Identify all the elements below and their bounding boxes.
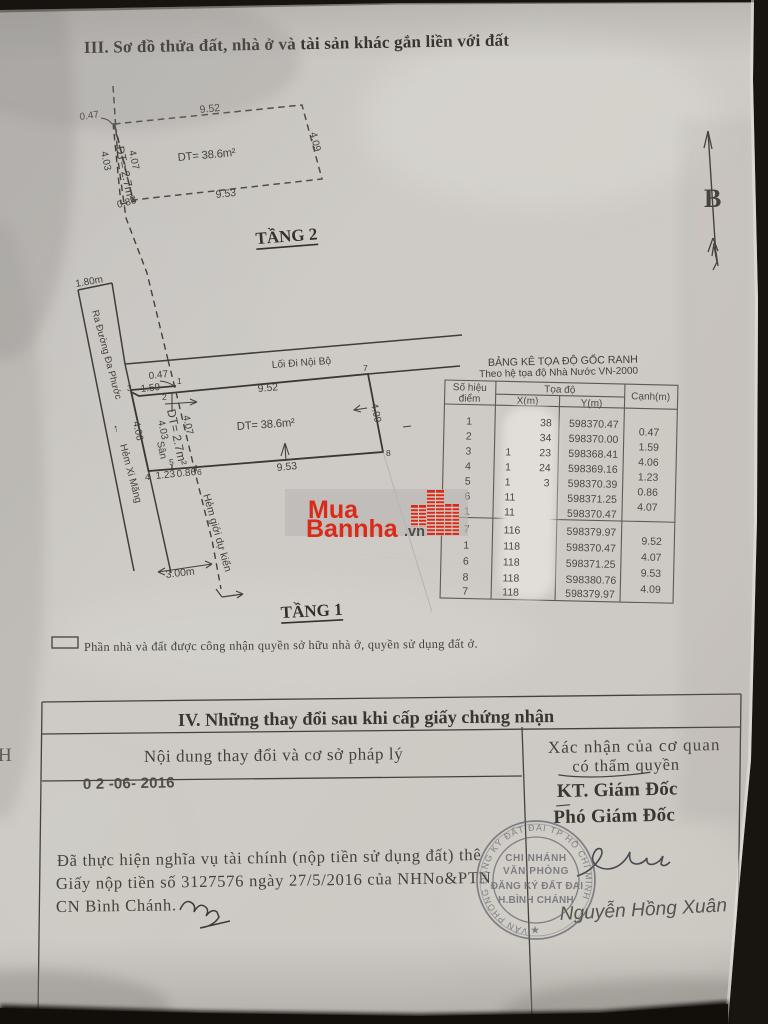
- svg-text:0.47: 0.47: [148, 369, 169, 382]
- svg-text:6: 6: [197, 467, 202, 477]
- svg-text:11: 11: [504, 506, 515, 518]
- svg-text:598368.41: 598368.41: [568, 448, 618, 461]
- svg-text:CN Bình Chánh.: CN Bình Chánh.: [56, 895, 177, 916]
- svg-text:3: 3: [544, 477, 550, 489]
- svg-text:Số hiệu: Số hiệu: [453, 381, 487, 394]
- svg-text:7: 7: [363, 363, 368, 373]
- svg-text:7: 7: [462, 585, 468, 597]
- svg-text:6: 6: [463, 555, 469, 567]
- svg-text:1: 1: [463, 539, 469, 551]
- svg-text:598370.47: 598370.47: [566, 542, 616, 555]
- svg-text:1: 1: [505, 461, 511, 473]
- svg-text:598370.39: 598370.39: [568, 478, 618, 491]
- svg-text:598370.00: 598370.00: [569, 433, 619, 446]
- svg-text:4: 4: [145, 472, 150, 482]
- svg-text:598379.97: 598379.97: [565, 588, 615, 601]
- svg-text:Phó Giám Đốc: Phó Giám Đốc: [553, 805, 675, 829]
- svg-text:Tọa độ: Tọa độ: [544, 384, 576, 396]
- svg-text:24: 24: [539, 462, 551, 474]
- svg-text:ĐĂNG KÝ ĐẤT ĐAI: ĐĂNG KÝ ĐẤT ĐAI: [491, 879, 583, 892]
- svg-text:598371.25: 598371.25: [566, 558, 616, 571]
- svg-text:4.07: 4.07: [637, 501, 658, 513]
- svg-text:116: 116: [503, 524, 520, 536]
- svg-text:1: 1: [505, 476, 511, 488]
- svg-text:9.53: 9.53: [276, 460, 298, 474]
- svg-text:2: 2: [466, 430, 472, 442]
- svg-text:11: 11: [504, 491, 515, 503]
- svg-text:Bannha: Bannha: [306, 515, 399, 543]
- svg-text:★: ★: [531, 925, 540, 935]
- svg-text:IV. Những thay đổi sau khi cấp: IV. Những thay đổi sau khi cấp giấy chứn…: [178, 706, 554, 730]
- svg-text:VĂN PHÒNG: VĂN PHÒNG: [503, 864, 569, 877]
- svg-text:Y(m): Y(m): [581, 398, 603, 409]
- svg-text:điểm: điểm: [459, 392, 481, 404]
- svg-text:TẦNG 1: TẦNG 1: [280, 600, 343, 622]
- svg-text:0.47: 0.47: [639, 426, 660, 438]
- svg-text:CHI NHÁNH: CHI NHÁNH: [505, 851, 567, 864]
- svg-text:Cạnh(m): Cạnh(m): [631, 391, 670, 403]
- svg-text:0.86: 0.86: [176, 467, 197, 480]
- svg-text:S98380.76: S98380.76: [565, 574, 616, 587]
- svg-text:9.53: 9.53: [641, 567, 662, 579]
- svg-text:5: 5: [465, 475, 471, 487]
- svg-text:5: 5: [169, 457, 174, 467]
- svg-text:598370.47: 598370.47: [569, 418, 619, 431]
- svg-text:8: 8: [386, 448, 391, 458]
- svg-text:8: 8: [462, 571, 468, 583]
- svg-text:Nội dung thay đổi và cơ sở phá: Nội dung thay đổi và cơ sở pháp lý: [144, 744, 404, 766]
- svg-text:0.86: 0.86: [637, 486, 658, 498]
- svg-text:1.23: 1.23: [155, 469, 176, 482]
- svg-text:38: 38: [540, 417, 552, 429]
- svg-text:1.59: 1.59: [140, 382, 161, 395]
- svg-text:9.53: 9.53: [215, 187, 237, 201]
- svg-text:3: 3: [465, 445, 471, 457]
- svg-text:4.07: 4.07: [641, 551, 662, 563]
- svg-text:34: 34: [540, 432, 552, 444]
- svg-text:598379.97: 598379.97: [566, 526, 616, 539]
- svg-text:1: 1: [505, 446, 511, 458]
- svg-text:có thẩm quyền: có thẩm quyền: [572, 755, 680, 776]
- svg-text:118: 118: [503, 556, 520, 568]
- svg-text:23: 23: [539, 447, 551, 459]
- svg-text:X(m): X(m): [517, 396, 539, 407]
- svg-text:4: 4: [465, 460, 471, 472]
- svg-text:2: 2: [162, 392, 167, 402]
- svg-text:118: 118: [502, 572, 519, 584]
- svg-text:598370.47: 598370.47: [567, 508, 617, 521]
- svg-text:598371.25: 598371.25: [567, 493, 617, 506]
- svg-text:KT. Giám Đốc: KT. Giám Đốc: [557, 778, 678, 802]
- svg-text:H.BÌNH CHÁNH: H.BÌNH CHÁNH: [498, 893, 574, 906]
- svg-text:0 2 -06- 2016: 0 2 -06- 2016: [83, 774, 175, 793]
- svg-text:1: 1: [177, 376, 182, 386]
- svg-text:118: 118: [502, 586, 519, 598]
- svg-text:1: 1: [466, 415, 472, 427]
- svg-text:3: 3: [127, 383, 132, 393]
- svg-text:9.52: 9.52: [257, 381, 279, 395]
- svg-text:118: 118: [503, 540, 520, 552]
- svg-text:1.59: 1.59: [638, 441, 659, 453]
- svg-text:9.52: 9.52: [641, 535, 662, 547]
- svg-text:598369.16: 598369.16: [568, 463, 618, 476]
- svg-text:1.23: 1.23: [638, 471, 659, 483]
- svg-text:4.06: 4.06: [638, 456, 659, 468]
- svg-text:4.09: 4.09: [640, 583, 661, 595]
